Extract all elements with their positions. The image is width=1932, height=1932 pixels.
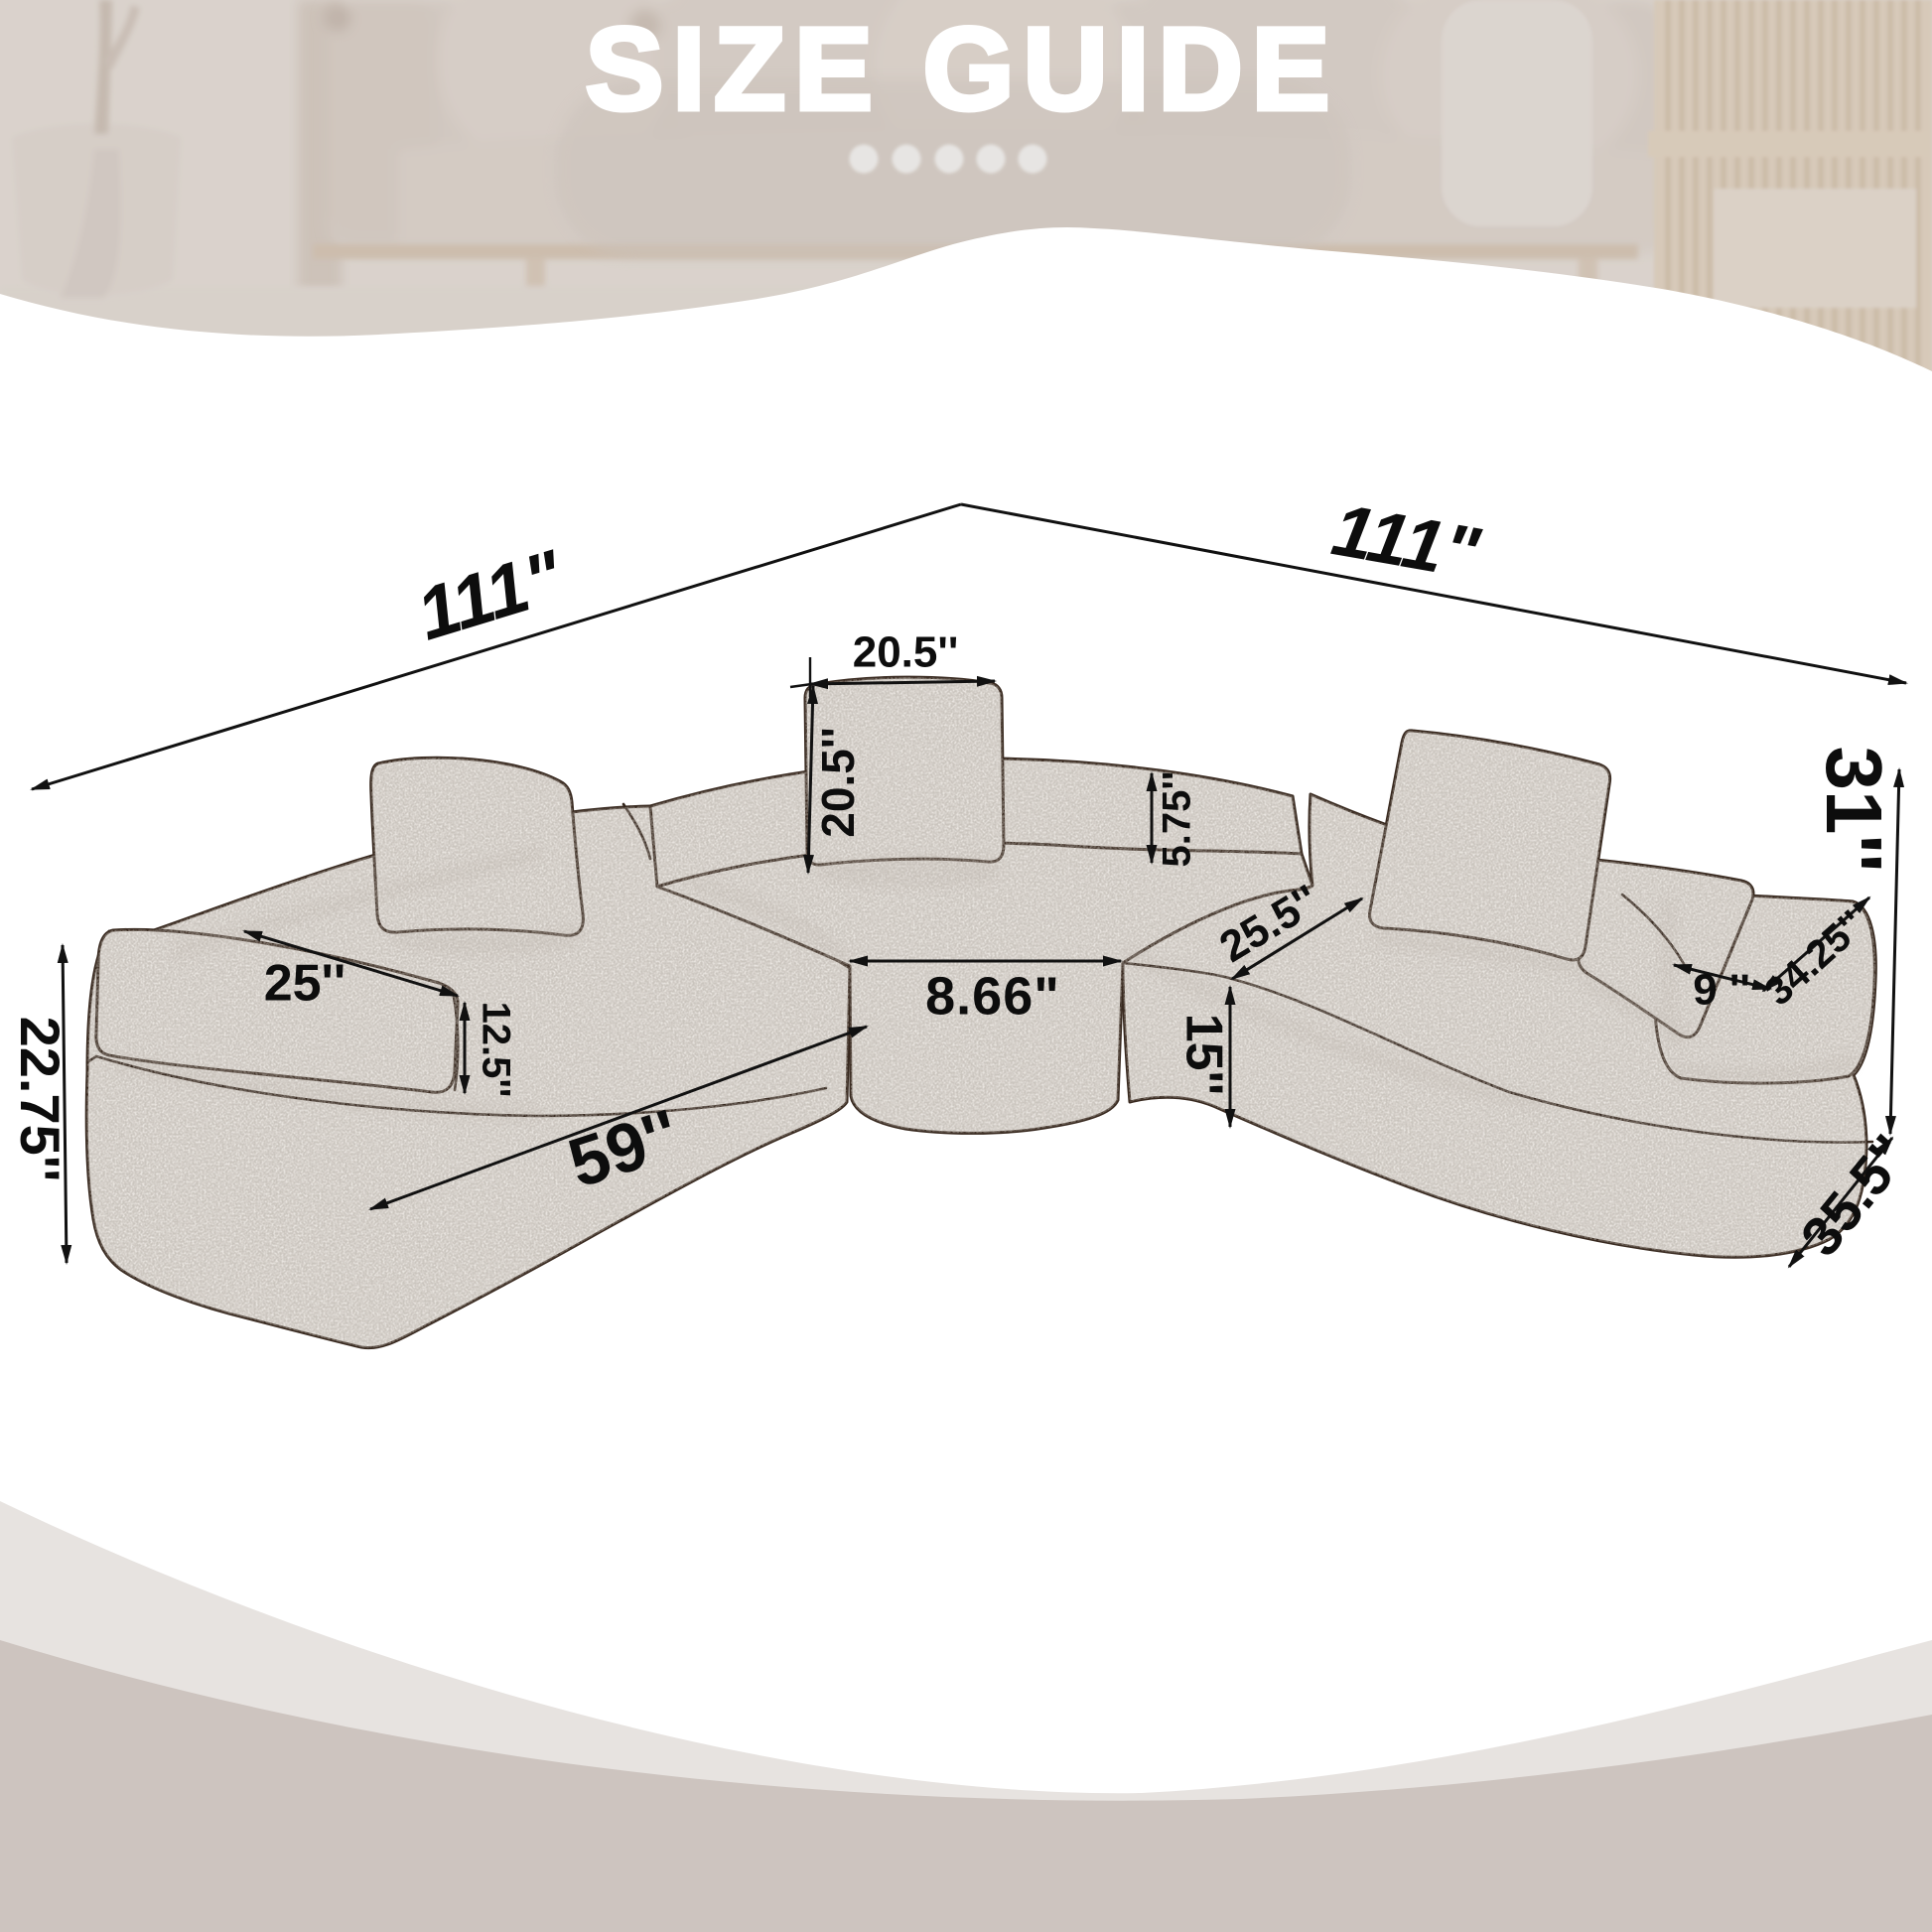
- svg-text:8.66": 8.66": [925, 966, 1060, 1026]
- svg-text:22.75'': 22.75'': [9, 1017, 71, 1182]
- svg-text:5.75'': 5.75'': [1156, 771, 1199, 868]
- svg-text:12.5'': 12.5'': [474, 1002, 517, 1098]
- svg-text:9 '': 9 '': [1693, 966, 1750, 1015]
- svg-text:31'': 31'': [1810, 746, 1898, 872]
- svg-text:25'': 25'': [264, 955, 346, 1013]
- svg-text:15'': 15'': [1174, 1014, 1232, 1096]
- svg-text:SIZE GUIDE: SIZE GUIDE: [586, 4, 1339, 135]
- svg-text:20.5'': 20.5'': [812, 727, 864, 837]
- svg-text:20.5'': 20.5'': [853, 628, 959, 677]
